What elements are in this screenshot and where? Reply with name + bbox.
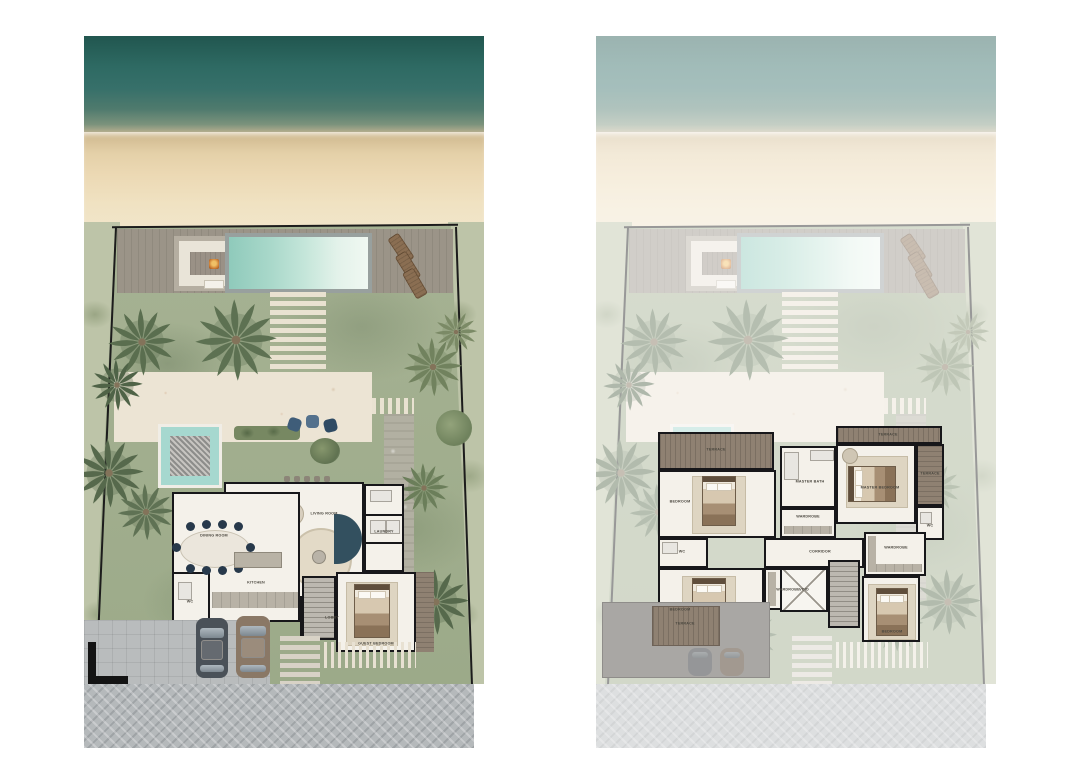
ocean — [596, 36, 996, 132]
room-label-wardrobe: WARDROBE — [884, 546, 908, 550]
palm-tree — [88, 356, 146, 414]
palm-tree — [114, 480, 178, 544]
palm-tree — [702, 294, 794, 386]
palm-tree — [911, 565, 985, 639]
bar-stool — [294, 476, 300, 482]
wardrobe-unit — [768, 572, 776, 606]
master-bed — [848, 466, 896, 502]
staircase — [302, 576, 336, 640]
boundary-wall — [88, 676, 128, 684]
palm-tree — [432, 308, 480, 356]
dining-chair — [218, 566, 227, 575]
kitchen-island — [234, 552, 282, 568]
room-label-kitchen: KITCHEN — [247, 581, 265, 585]
page: DINING ROOM KITCHEN LIVING ROOM LOBBY WC… — [0, 0, 1072, 768]
room-label-wc: WC — [927, 524, 934, 528]
dining-chair — [246, 543, 255, 552]
room-label-wardrobe: WARDROBE — [776, 588, 800, 592]
bathtub — [784, 452, 799, 480]
double-vanity — [810, 450, 834, 461]
dining-chair — [202, 520, 211, 529]
plunge-pool-mosaic — [170, 436, 210, 476]
slat-fence — [836, 642, 928, 668]
side-slat-path — [884, 398, 926, 414]
staircase — [828, 560, 860, 628]
room-label-laundry: LAUNDRY — [374, 530, 393, 534]
palm-tree — [600, 356, 658, 414]
upper-floor-plan-image: TERRACE TERRACE TERRACE TERRACE BEDROOM … — [596, 36, 996, 748]
ocean — [84, 36, 484, 132]
wc-fixture — [178, 582, 192, 600]
room-label-void: VOID — [799, 588, 809, 592]
room-label-terrace: TERRACE — [675, 622, 694, 626]
palm-tree — [396, 460, 452, 516]
wardrobe-unit — [876, 564, 922, 572]
wall-partition — [208, 572, 210, 622]
dining-chair — [234, 522, 243, 531]
wc-fixture — [920, 512, 932, 524]
bar-stool — [324, 476, 330, 482]
fire-bowl-icon — [721, 259, 731, 269]
bed — [702, 476, 736, 526]
fire-pit-bench — [204, 280, 224, 289]
beach — [84, 132, 484, 228]
bar-stool — [314, 476, 320, 482]
room-label-bedroom: BEDROOM — [882, 630, 903, 634]
entry-path — [792, 636, 832, 684]
outdoor-pouf — [306, 415, 319, 428]
dining-chair — [186, 564, 195, 573]
room-label-master-bedroom: MASTER BEDROOM — [861, 486, 900, 490]
dining-chair — [186, 522, 195, 531]
room-label-wc: WC — [187, 600, 194, 604]
car-faded — [720, 648, 744, 676]
dining-chair — [202, 566, 211, 575]
car-bronze — [236, 616, 270, 678]
kitchen-cabinets — [212, 592, 298, 608]
wall-partition — [366, 514, 402, 516]
room-label-corridor: CORRIDOR — [809, 550, 831, 554]
wardrobe-unit — [868, 536, 876, 572]
guest-bed — [354, 584, 390, 638]
side-slat-path — [372, 398, 414, 414]
room-label-terrace: TERRACE — [706, 448, 725, 452]
room-label-guest-bedroom: GUEST BEDROOM — [358, 642, 394, 646]
palm-tree — [944, 308, 992, 356]
palm-tree — [190, 294, 282, 386]
swimming-pool — [737, 233, 884, 293]
room-label-wc: WC — [679, 550, 686, 554]
vanity — [370, 490, 392, 502]
room-label-dining: DINING ROOM — [200, 534, 228, 538]
shrub — [310, 438, 340, 464]
street-paving — [596, 684, 986, 748]
swimming-pool — [225, 233, 372, 293]
room-label-bedroom: BEDROOM — [670, 608, 691, 612]
wardrobe-unit — [784, 526, 832, 534]
room-label-terrace: TERRACE — [920, 472, 939, 476]
bed — [876, 588, 908, 636]
beach — [596, 132, 996, 228]
room-label-bedroom: BEDROOM — [670, 500, 691, 504]
entry-path — [280, 636, 320, 684]
room-label-wardrobe: WARDROBE — [796, 515, 820, 519]
room-label-living: LIVING ROOM — [310, 512, 337, 516]
car-faded — [688, 648, 712, 676]
car-dark — [196, 618, 228, 678]
bar-stool — [284, 476, 290, 482]
plunge-pool — [158, 424, 222, 488]
wall-partition — [366, 542, 402, 544]
bedroom-terrace — [416, 572, 434, 652]
dining-chair — [172, 543, 181, 552]
coffee-table — [312, 550, 326, 564]
fire-bowl-icon — [209, 259, 219, 269]
bar-stool — [304, 476, 310, 482]
armchair — [842, 448, 858, 464]
ground-floor-plan-image: DINING ROOM KITCHEN LIVING ROOM LOBBY WC… — [84, 36, 484, 748]
shrub — [436, 410, 472, 446]
street-paving — [84, 684, 474, 748]
room-label-master-bath: MASTER BATH — [796, 480, 825, 484]
room-label-terrace: TERRACE — [878, 433, 897, 437]
room-label-lobby: LOBBY — [325, 616, 339, 620]
wc-fixture — [662, 542, 678, 554]
dining-chair — [218, 520, 227, 529]
